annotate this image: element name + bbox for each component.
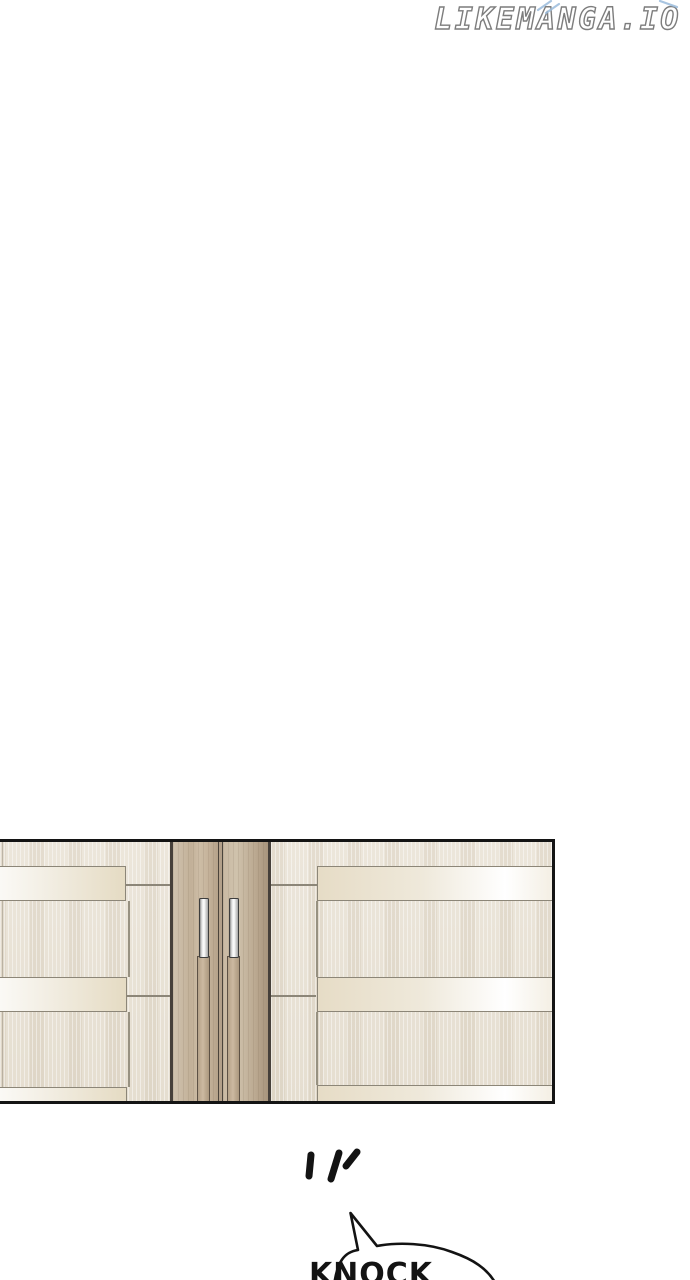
- door-handle-backplate: [227, 956, 240, 1101]
- knock-emphasis-strokes: [309, 1152, 357, 1179]
- wall-left: [0, 842, 170, 1101]
- wall-trim-line: [316, 1012, 318, 1085]
- door-handle-left: [199, 898, 209, 958]
- manga-panel-door-scene: [0, 839, 555, 1104]
- wall-trim-strip: [0, 866, 126, 901]
- wall-right: [271, 842, 552, 1101]
- wall-trim-line: [271, 884, 317, 886]
- wall-trim-line: [127, 995, 170, 997]
- wall-trim-line: [316, 901, 318, 977]
- double-door: [170, 842, 271, 1101]
- emphasis-stroke: [309, 1155, 311, 1176]
- sparkle-line-icon: [538, 1, 551, 10]
- wall-trim-line: [128, 1012, 130, 1087]
- emphasis-stroke: [331, 1153, 339, 1179]
- knock-sfx-text: KNOCK: [309, 1257, 434, 1280]
- wall-trim-strip: [317, 866, 552, 901]
- sparkle-line-icon: [546, 4, 559, 13]
- door-handle-backplate: [197, 956, 210, 1101]
- door-wood-grain: [173, 842, 268, 1101]
- manga-page: LIKEMANGA.IO: [0, 0, 690, 1280]
- wall-trim-strip: [0, 1087, 127, 1101]
- wall-trim-line: [126, 884, 170, 886]
- wall-trim-strip: [0, 977, 127, 1012]
- knock-sfx: KNOCK: [270, 1140, 510, 1280]
- sparkle-line-icon: [660, 1, 677, 7]
- sparkle-lines-icon: [525, 0, 690, 16]
- door-handle-right: [229, 898, 239, 958]
- wall-trim-strip: [317, 1085, 552, 1101]
- wall-trim-line: [128, 901, 130, 977]
- wall-trim-line: [271, 995, 316, 997]
- door-frame: [170, 842, 173, 1101]
- wall-trim-strip: [317, 977, 552, 1012]
- emphasis-stroke: [346, 1152, 357, 1166]
